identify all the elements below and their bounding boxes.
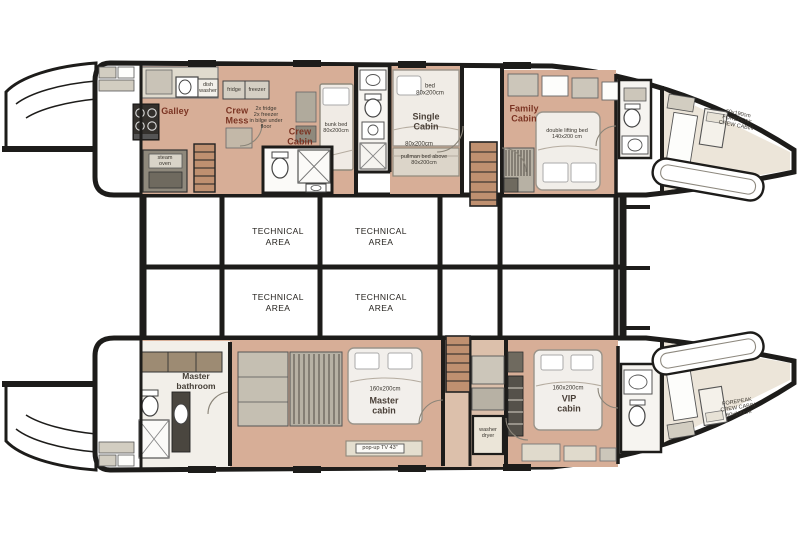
family-bed <box>536 112 600 190</box>
vip-shelf <box>508 352 523 436</box>
steam-oven-cabinet <box>143 150 187 192</box>
tv-cabinet <box>346 441 422 456</box>
galley-counter <box>142 67 218 98</box>
forepeak-bed-top <box>699 109 727 148</box>
galley-stairs <box>194 144 215 192</box>
floor-plan-drawing <box>0 0 800 533</box>
forepeak-bed-bottom <box>699 386 727 425</box>
stern-platform-top <box>2 63 96 152</box>
fridge-freezer-units <box>223 81 269 99</box>
vip-bathroom <box>621 364 661 452</box>
stairs-center <box>446 336 470 392</box>
vip-bed <box>534 350 602 430</box>
single-bathroom <box>357 66 389 172</box>
bridge-deck <box>143 194 650 339</box>
master-bed <box>348 348 422 424</box>
stern-platform-bottom <box>2 381 96 470</box>
family-bathroom <box>619 80 651 158</box>
hallway-lockers <box>472 356 504 410</box>
washer-dryer-closet <box>473 416 503 454</box>
single-pullman-sofa <box>393 148 459 176</box>
single-bed <box>393 70 459 146</box>
crew-bathroom <box>263 147 332 193</box>
stairs-top-hull <box>470 142 497 206</box>
cooktop-icon <box>133 104 159 140</box>
catamaran-floor-plan: Galley Crew Mess Crew Cabin Single Cabin… <box>0 0 800 533</box>
master-wardrobe <box>238 352 342 426</box>
